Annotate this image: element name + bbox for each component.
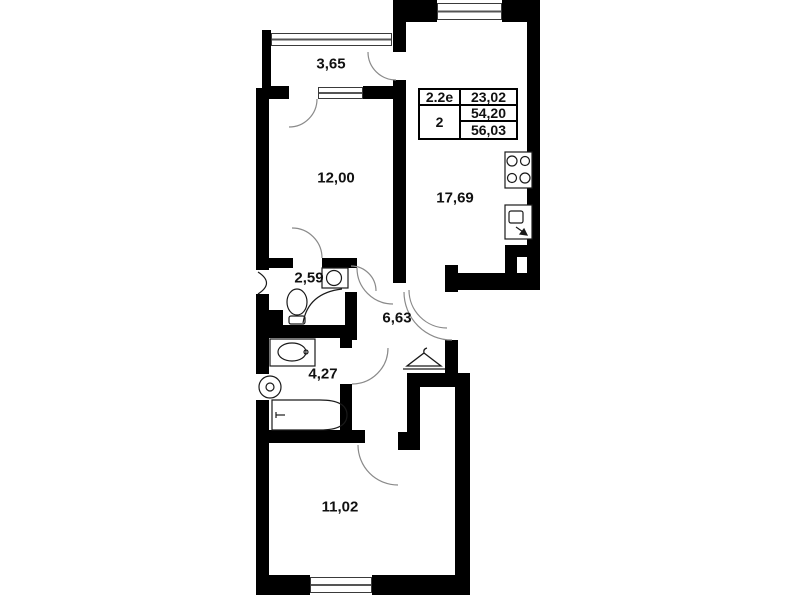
wall xyxy=(340,325,352,348)
wall xyxy=(393,80,406,283)
wall xyxy=(322,258,357,268)
living-area-cell: 23,02 xyxy=(461,90,516,106)
info-table: 2.2е 23,02 2 54,20 56,03 xyxy=(418,88,518,140)
wall xyxy=(445,265,458,292)
door-arc xyxy=(357,268,393,304)
door-arc xyxy=(368,52,396,80)
room-area-label-living: 12,00 xyxy=(317,170,355,187)
wall xyxy=(256,430,365,443)
floor-plan: 3,65 12,00 17,69 2,59 6,63 4,27 11,02 2.… xyxy=(0,0,799,600)
door-arc xyxy=(289,99,317,127)
wall xyxy=(393,0,406,52)
wall xyxy=(372,575,470,595)
door-arc xyxy=(409,290,447,328)
bathtub-icon xyxy=(272,400,347,430)
window xyxy=(271,33,392,46)
wall xyxy=(269,258,293,268)
wall xyxy=(407,387,420,450)
wall xyxy=(340,384,352,432)
window xyxy=(310,577,372,593)
flat-type-cell: 2.2е xyxy=(420,90,461,106)
room-area-label-balcony: 3,65 xyxy=(316,56,345,73)
room-area-label-hallway: 6,63 xyxy=(382,310,411,327)
window xyxy=(437,3,502,20)
room-area-label-bedroom: 11,02 xyxy=(322,499,359,516)
window xyxy=(318,87,363,99)
wall xyxy=(269,310,283,325)
door-arc xyxy=(352,348,388,384)
shower-icon xyxy=(303,289,342,323)
wall xyxy=(256,575,310,595)
room-area-label-kitchen: 17,69 xyxy=(436,190,474,207)
bath-sink-icon xyxy=(270,339,315,366)
wall-niche xyxy=(256,270,269,294)
rooms-count-cell: 2 xyxy=(420,106,461,138)
wall xyxy=(450,273,540,290)
wall xyxy=(406,0,437,22)
door-arc xyxy=(292,228,322,258)
area-cell-1: 54,20 xyxy=(461,106,516,122)
area-cell-2: 56,03 xyxy=(461,122,516,138)
door-arc xyxy=(351,266,376,291)
wall xyxy=(256,88,269,595)
room-area-label-wc: 2,59 xyxy=(294,270,323,287)
vent-shaft-wall xyxy=(505,245,517,275)
room-area-label-bathroom: 4,27 xyxy=(308,366,337,383)
vent-shaft-wall xyxy=(517,245,540,257)
wall xyxy=(269,86,289,99)
toilet-icon xyxy=(287,289,307,324)
hanger-icon xyxy=(403,348,445,369)
wc-sink-icon xyxy=(322,268,348,288)
wall-niche xyxy=(256,374,269,400)
door-arc xyxy=(358,445,398,485)
wall xyxy=(256,325,352,338)
wall xyxy=(455,373,470,595)
